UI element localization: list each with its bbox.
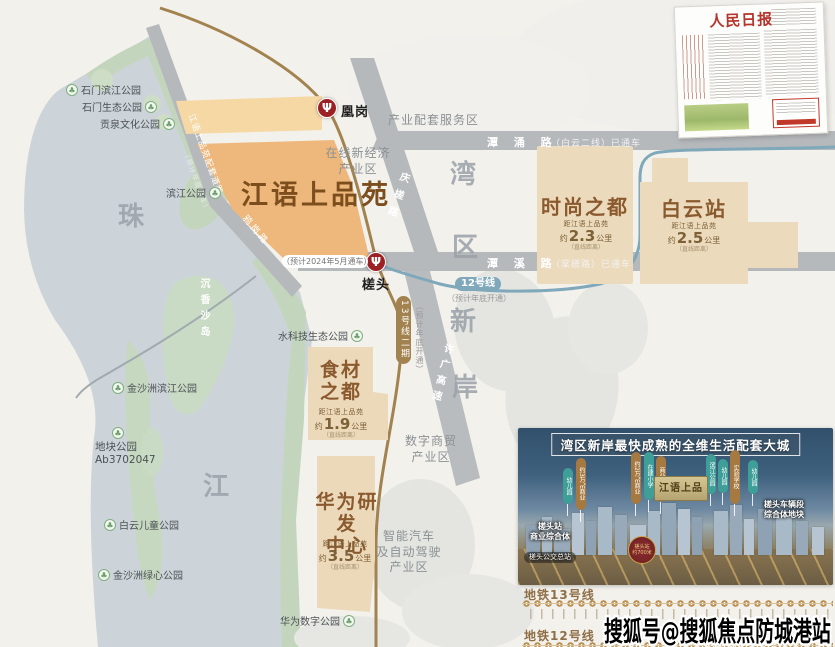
park-item: ♣水科技生态公园 (278, 328, 363, 343)
aerial-render-panel: 湾区新岸最快成熟的全维生活配套大城 幼儿园 约3万㎡商业 约2万㎡商业 在建小学… (518, 428, 833, 585)
park-item: ♣金沙洲滨江公园 (112, 380, 197, 395)
river-letter: 江 (203, 466, 229, 503)
building (692, 517, 702, 555)
area-service: 产业配套服务区 (388, 113, 479, 129)
tree-icon: ♣ (112, 427, 124, 439)
park-label: 石门生态公园 (82, 99, 142, 114)
station-chatou: 槎头 (362, 274, 390, 293)
facility-tag: 在建小学 (644, 452, 654, 500)
tree-icon: ♣ (163, 118, 175, 130)
tree-icon: ♣ (112, 382, 124, 394)
distance-unit: 公里 (355, 554, 371, 563)
road-note-tanyong: （白云二线）已通车 (551, 136, 641, 149)
distance-unit: 公里 (704, 236, 720, 245)
block-title-food: 食材 之都 (310, 360, 372, 404)
newspaper-clipping: 人民日报 (674, 1, 829, 138)
park-item: ♣滨江公园 (166, 185, 221, 200)
promo-map-page: 珠 江 湾 区 新 岸 沉香沙岛 产业配套服务区 在线新经济 产业区 数字商贸 … (0, 0, 835, 647)
park-item: ♣白云儿童公园 (104, 517, 179, 532)
station-distance-badge: 槎头站 约700米 (628, 536, 656, 564)
distance-prefix: 约 (560, 234, 568, 243)
park-label: 滨江公园 (166, 185, 206, 200)
park-label: 金沙洲绿心公园 (113, 567, 183, 582)
metro-logo-icon: Ψ (317, 98, 337, 118)
distance-note: （直线距离） (656, 247, 732, 254)
park-item: ♣华为数字公园 (280, 613, 355, 628)
tree-icon: ♣ (66, 84, 78, 96)
facility-tag: 幼儿园 (563, 468, 573, 504)
station-huanggang: 凰岗 (341, 101, 369, 120)
distance-unit: 公里 (596, 234, 612, 243)
building (730, 505, 742, 555)
newbank-letter: 岸 (452, 367, 478, 404)
bay-letter: 湾 (450, 154, 476, 191)
facility-tag: 约2万㎡商业 (631, 452, 641, 504)
distance-card-food: 距江语上品苑 约1.9公里 （直线距离） (308, 408, 374, 440)
block-title-baiyun: 白云站 (640, 198, 748, 221)
road-note-tanxi: （棠槎路）已通车 (551, 257, 631, 270)
park-label: 地块公园 Ab3702047 (95, 441, 156, 467)
area-digital: 数字商贸 产业区 (401, 434, 461, 465)
park-item: ♣贡泉文化公园 (100, 116, 175, 131)
building (796, 521, 808, 555)
distance-card-baiyun: 距江语上品苑 约2.5公里 （直线距离） (656, 222, 732, 254)
park-label: 贡泉文化公园 (100, 116, 160, 131)
building (776, 515, 792, 555)
tree-icon: ♣ (209, 187, 221, 199)
facility-tag: 实验学校 (730, 450, 740, 504)
metro12-label: 12号线 (455, 277, 501, 291)
road-label-tanxi: 潭 溪 路 (487, 255, 558, 271)
district-blob (402, 574, 534, 647)
distance-card-huawei: 距江语上品苑 约3.5公里 （直线距离） (312, 540, 378, 572)
distance-prefix: 约 (315, 422, 323, 431)
park-label: 华为数字公园 (280, 613, 340, 628)
distance-value: 2.5 (677, 229, 704, 247)
park-label: 水科技生态公园 (278, 328, 348, 343)
bay-letter: 区 (452, 227, 478, 264)
distance-prefix: 约 (319, 554, 327, 563)
park-item: ♣石门滨江公园 (66, 82, 141, 97)
road-label-tanyong: 潭 涌 路 (487, 134, 558, 150)
distance-note: （直线距离） (312, 565, 378, 572)
distance-value: 3.5 (328, 547, 355, 565)
river-letter: 珠 (118, 196, 144, 233)
metro13-label: 13号线二期 (396, 296, 411, 364)
newspaper-headline-lines (771, 8, 817, 26)
facility-tag: 约3万㎡商业 (576, 458, 586, 510)
newspaper-highlight-strip (777, 119, 816, 125)
park-label: 白云儿童公园 (119, 517, 179, 532)
building (678, 509, 690, 555)
park-label: 金沙洲滨江公园 (127, 380, 197, 395)
project-plaque: 江语上品 (654, 476, 708, 501)
distance-prefix: 约 (668, 236, 676, 245)
landmark-label: 槎头公交总站 (524, 552, 576, 563)
distance-card-fashion: 距江语上品苑 约2.3公里 （直线距离） (548, 220, 624, 252)
render-title: 湾区新岸最快成熟的全维生活配套大城 (551, 433, 801, 456)
building (586, 521, 596, 555)
newspaper-column (708, 33, 762, 101)
building (812, 527, 824, 555)
block-baiyun (640, 158, 798, 284)
tree-icon: ♣ (98, 569, 110, 581)
newspaper-vertical-headline (682, 35, 706, 100)
district-blob (568, 282, 648, 374)
facility-tag: 幼儿园 (718, 459, 728, 493)
newspaper-highlight-box (772, 98, 820, 129)
distance-value: 2.3 (569, 227, 596, 245)
distance-note: （直线距离） (548, 245, 624, 252)
newbank-letter: 新 (450, 301, 476, 338)
building (714, 511, 728, 555)
facility-tag: 幼儿园 (748, 460, 758, 494)
newspaper-column (764, 29, 819, 97)
landmark-label: 槎头站 商业综合体 (530, 522, 570, 542)
park-item: ♣石门生态公园 (82, 99, 157, 114)
metro13-note: （预计年底开通） (414, 302, 425, 394)
tree-icon: ♣ (343, 615, 355, 627)
park-item: ♣金沙洲绿心公园 (98, 567, 183, 582)
distance-unit: 公里 (351, 422, 367, 431)
metro12-note: （预计年底开通） (447, 293, 511, 304)
station-open-note: （预计2024年5月通车） (282, 255, 368, 268)
distance-value: 1.9 (324, 415, 351, 433)
landmark-label: 槎头车辆段 综合体地块 (764, 500, 804, 520)
watermark: 搜狐号@搜狐焦点防城港站 (604, 610, 831, 647)
newspaper-photo (684, 103, 749, 131)
tree-icon: ♣ (351, 330, 363, 342)
newspaper-masthead: 人民日报 (709, 8, 774, 31)
distance-note: （直线距离） (308, 433, 374, 440)
block-title-fashion: 时尚之都 (537, 196, 633, 219)
building (744, 519, 754, 555)
park-label: 石门滨江公园 (81, 82, 141, 97)
project-title: 江语上品苑 (241, 173, 391, 212)
building (572, 513, 584, 555)
building (598, 507, 612, 555)
building (662, 503, 676, 555)
tree-icon: ♣ (104, 519, 116, 531)
building (615, 515, 627, 555)
legend-line13-stations (522, 599, 833, 608)
newspaper-highlight-lines (776, 102, 815, 115)
tree-icon: ♣ (145, 101, 157, 113)
island-label: 沉香沙岛 (196, 278, 211, 350)
